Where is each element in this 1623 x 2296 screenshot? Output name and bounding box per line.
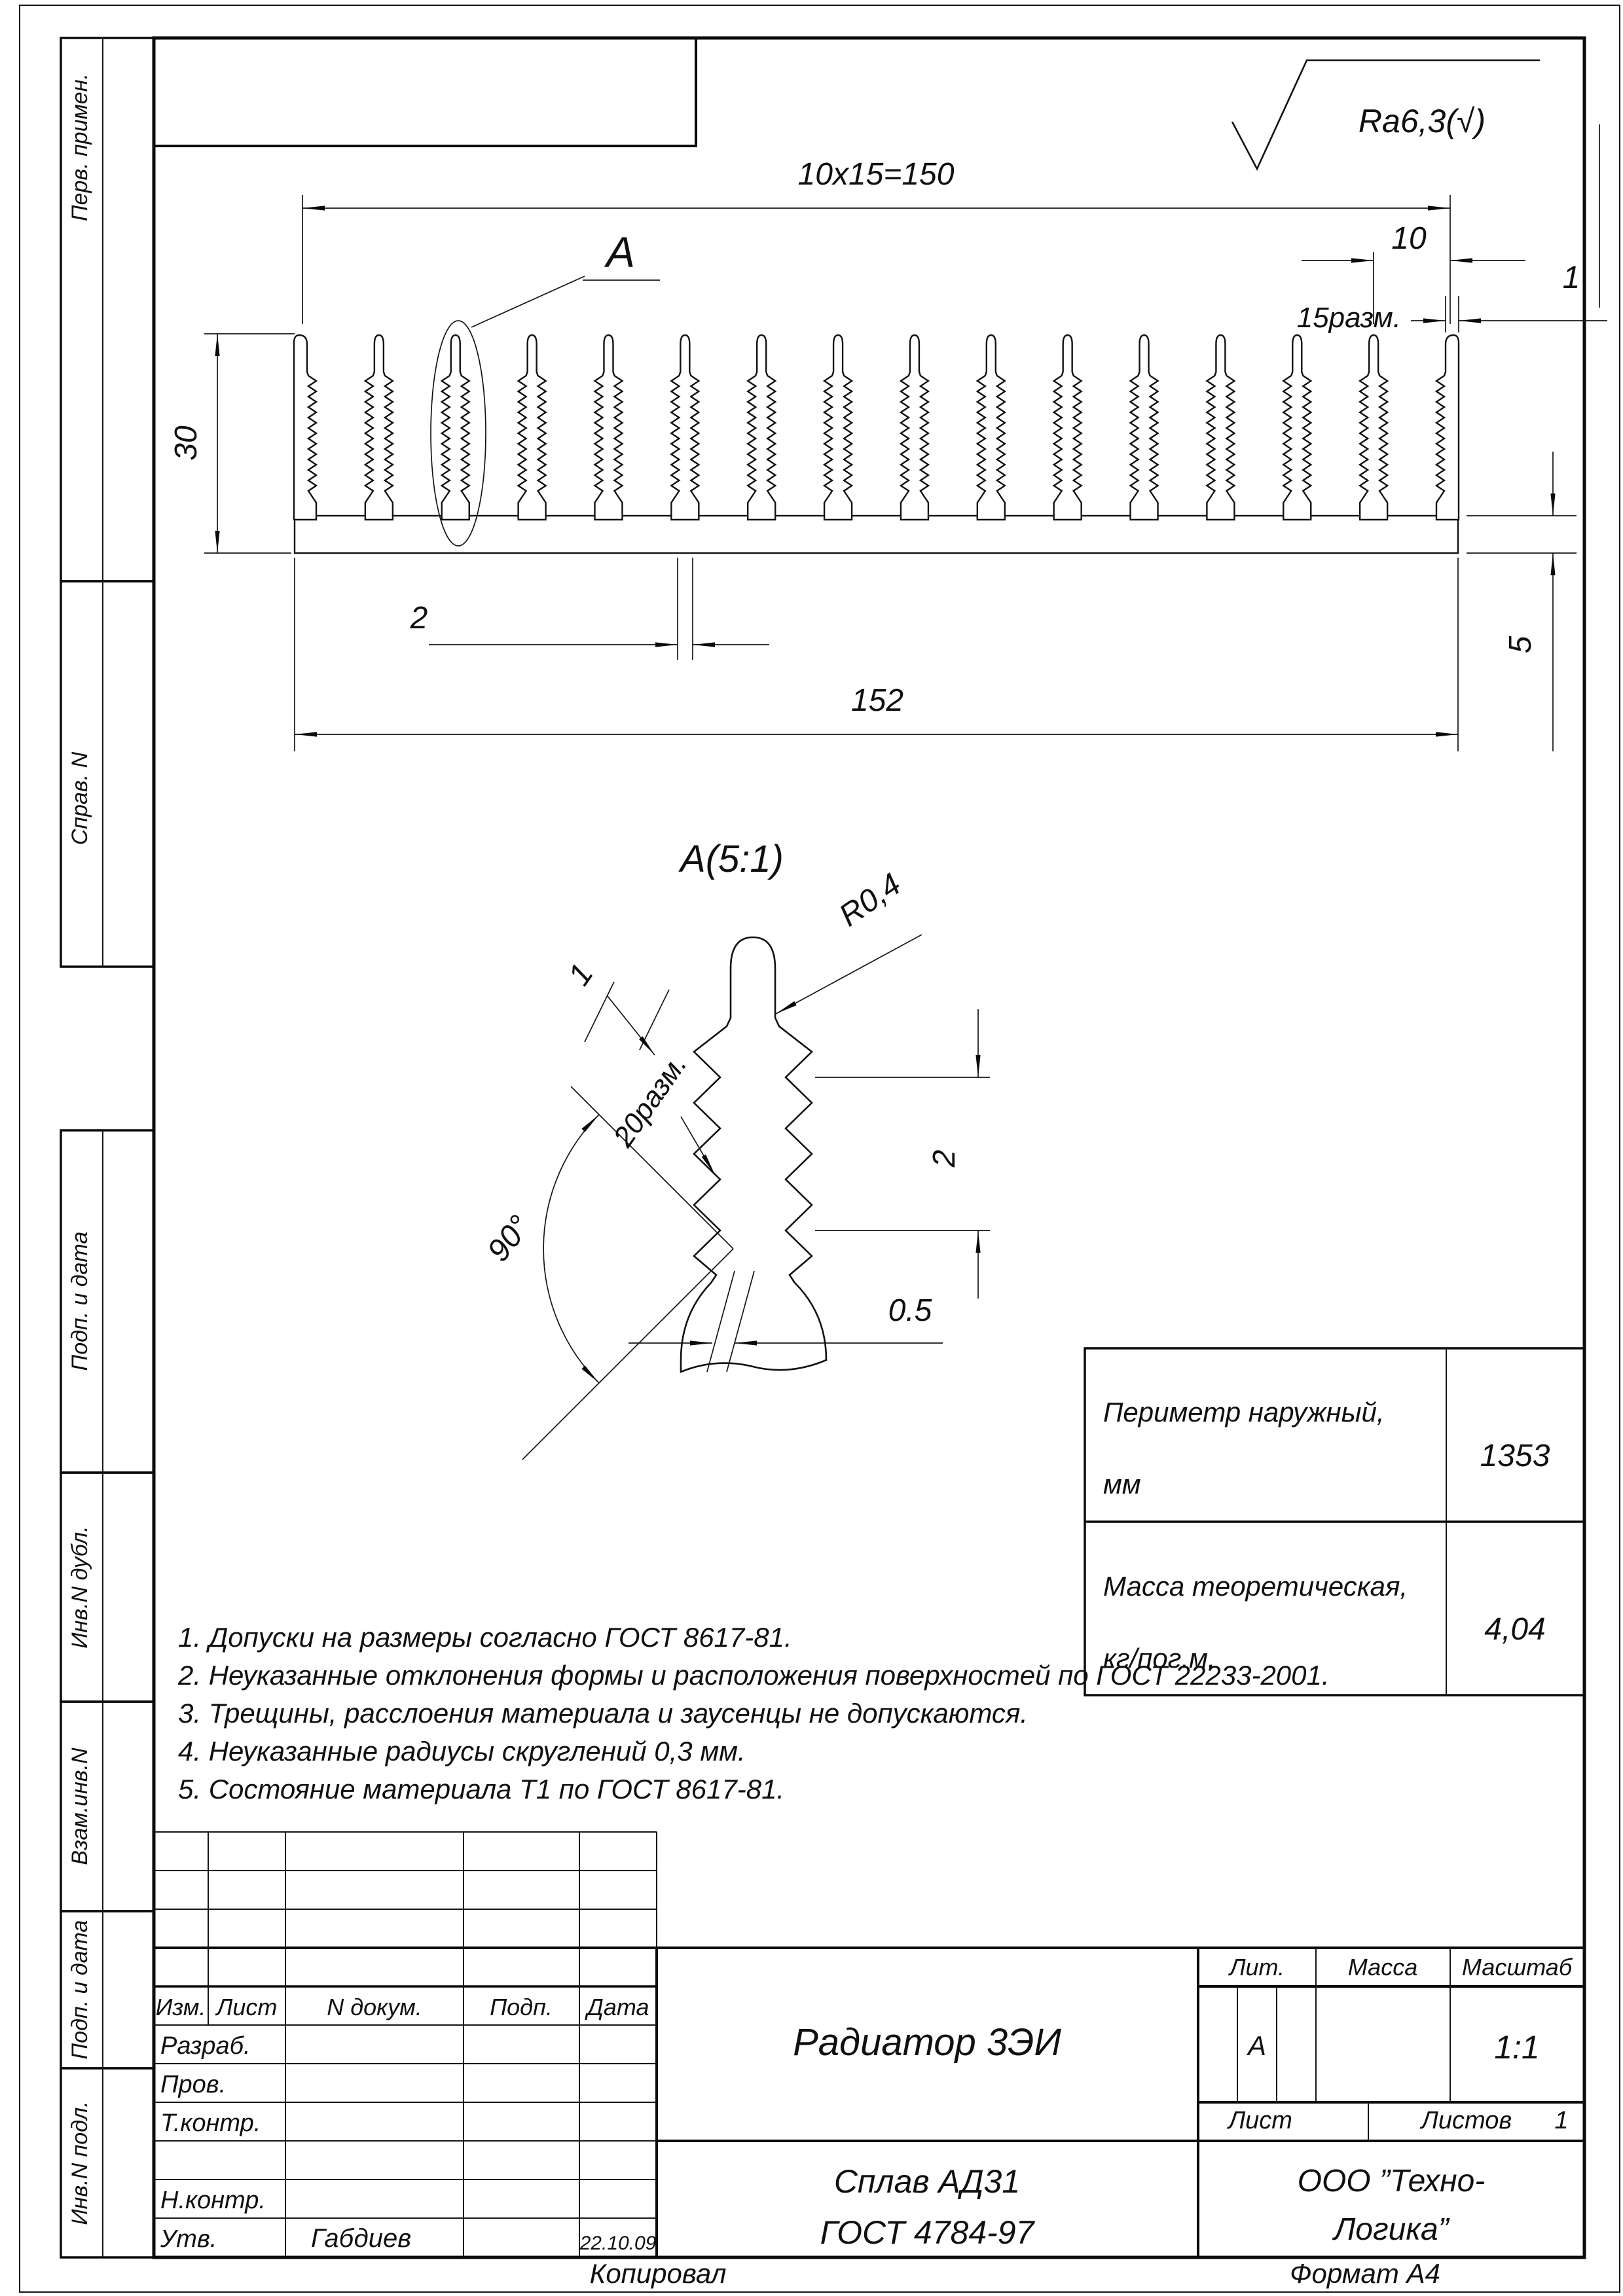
tb-col-podp: Подп.	[490, 1994, 553, 2020]
tb-row-utv: Утв.	[160, 2225, 217, 2253]
detail-view: A(5:1) R0,4 1 20разм. 2 0.5 90°	[481, 838, 990, 1460]
dim-detail-offset: 0.5	[888, 1293, 932, 1328]
dim-pitch: 10	[1391, 221, 1427, 256]
dim-tip-width: 1	[1563, 260, 1580, 295]
tb-sheet-label: Лист	[1226, 2107, 1292, 2134]
note-3: 3. Трещины, расслоения материала и заусе…	[178, 1698, 1028, 1729]
spec-table: Периметр наружный, мм 1353 Масса теорети…	[1085, 1348, 1584, 1695]
gost-drawing-sheet: Перв. примен. Справ. N Подп. и дата Инв.…	[0, 0, 1623, 2296]
tb-doc-title: Радиатор 3ЭИ	[793, 2021, 1061, 2064]
note-2: 2. Неуказанные отклонения формы и распол…	[177, 1660, 1330, 1691]
margin-label-inv-dubl: Инв.N дубл.	[67, 1526, 92, 1648]
left-margin-boxes: Перв. примен. Справ. N Подп. и дата Инв.…	[61, 38, 154, 2257]
dim-places: 15разм.	[1297, 302, 1401, 334]
tb-mass-label: Масса	[1348, 1954, 1417, 1981]
dim-detail-radius: R0,4	[833, 867, 907, 934]
footer-strip: Копировал Формат А4	[590, 2258, 1440, 2289]
tb-sheets-value: 1	[1554, 2107, 1568, 2134]
footer-copied-label: Копировал	[590, 2258, 727, 2289]
margin-label-inv-podl: Инв.N подл.	[67, 2101, 92, 2225]
tb-scale-label: Масштаб	[1462, 1954, 1573, 1981]
tb-row-prov: Пров.	[160, 2071, 226, 2098]
dim-detail-places: 20разм.	[607, 1049, 693, 1153]
tb-row-tkontr: Т.контр.	[160, 2109, 261, 2137]
tb-col-izm: Изм.	[156, 1994, 206, 2020]
tb-date: 22.10.09	[579, 2233, 657, 2254]
dim-detail-tip: 1	[562, 958, 600, 992]
title-block: Изм. Лист N докум. Подп. Дата Разраб. Пр…	[154, 1832, 1584, 2257]
heatsink-fins	[294, 335, 1459, 520]
tb-scale-value: 1:1	[1494, 2029, 1540, 2066]
heatsink-main-view: A	[294, 228, 1459, 553]
dim-detail-angle: 90°	[481, 1210, 538, 1268]
note-1: 1. Допуски на размеры согласно ГОСТ 8617…	[178, 1622, 792, 1653]
tb-lit-label: Лит.	[1228, 1954, 1285, 1981]
detail-callout-label: A	[604, 228, 635, 276]
detail-title: A(5:1)	[678, 838, 784, 880]
dim-fin-thickness: 2	[410, 601, 428, 636]
top-left-stamp-box	[154, 38, 696, 146]
spec-row2-label1: Масса теоретическая,	[1103, 1571, 1408, 1602]
dim-height: 30	[169, 425, 204, 461]
tb-col-data: Дата	[585, 1994, 649, 2020]
note-5: 5. Состояние материала Т1 по ГОСТ 8617-8…	[178, 1774, 784, 1804]
tb-col-list: Лист	[215, 1994, 278, 2020]
drawing-page: Перв. примен. Справ. N Подп. и дата Инв.…	[0, 0, 1623, 2296]
tb-row-razrab: Разраб.	[160, 2032, 251, 2060]
dim-total-pitch: 10x15=150	[798, 157, 955, 192]
heatsink-base	[295, 516, 1458, 553]
footer-format-label: Формат А4	[1290, 2258, 1440, 2289]
tb-company-line1: ООО ”Техно-	[1298, 2164, 1486, 2198]
roughness-value: Ra6,3(√)	[1359, 103, 1486, 139]
margin-label-podp-data-1: Подп. и дата	[67, 1232, 92, 1371]
tb-approver-name: Габдиев	[311, 2224, 411, 2253]
margin-label-sprav-n: Справ. N	[67, 751, 92, 845]
tb-material-line1: Сплав АД31	[834, 2163, 1020, 2200]
spec-row1-value: 1353	[1480, 1439, 1550, 1473]
tb-material-line2: ГОСТ 4784-97	[820, 2214, 1036, 2251]
spec-row1-label1: Периметр наружный,	[1103, 1397, 1385, 1427]
tb-row-nkontr: Н.контр.	[160, 2187, 266, 2214]
tb-lit-value: А	[1246, 2030, 1266, 2061]
dim-base-thickness: 5	[1503, 636, 1538, 653]
margin-label-podp-data-2: Подп. и дата	[67, 1920, 92, 2060]
margin-label-perv-primen: Перв. примен.	[67, 73, 92, 221]
tb-col-ndokum: N докум.	[327, 1994, 422, 2020]
tb-sheets-label: Листов	[1419, 2107, 1512, 2134]
spec-row2-value: 4,04	[1484, 1612, 1545, 1647]
spec-row1-label2: мм	[1103, 1469, 1141, 1499]
margin-label-vzam-inv: Взам.инв.N	[67, 1748, 92, 1865]
surface-roughness-symbol: Ra6,3(√)	[1232, 60, 1540, 169]
dim-detail-pitch: 2	[927, 1150, 962, 1168]
note-4: 4. Неуказанные радиусы скруглений 0,3 мм…	[178, 1736, 746, 1767]
dim-total-width: 152	[851, 683, 903, 718]
tb-company-line2: Логика”	[1332, 2212, 1450, 2247]
